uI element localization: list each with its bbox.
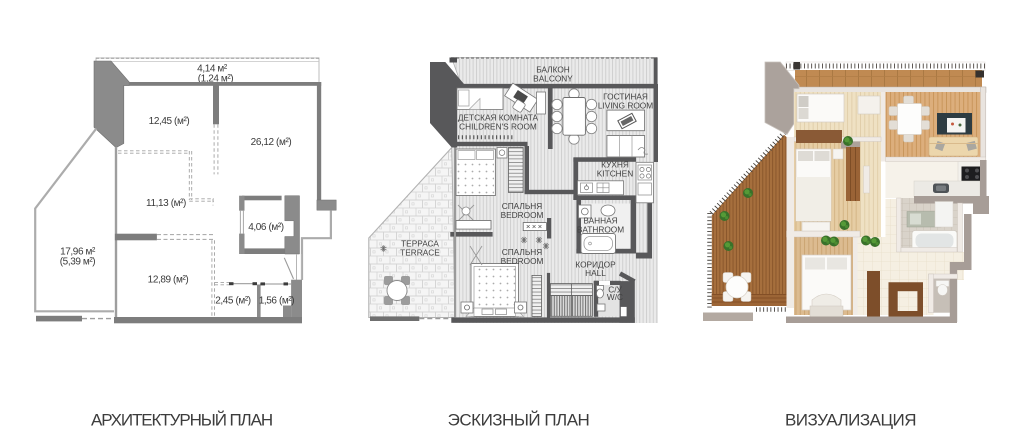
svg-text:KITCHEN: KITCHEN <box>597 169 633 179</box>
svg-text:BALCONY: BALCONY <box>533 74 573 84</box>
svg-text:ВИЗУАЛИЗАЦИЯ: ВИЗУАЛИЗАЦИЯ <box>785 411 916 430</box>
svg-text:12,45 (м²): 12,45 (м²) <box>149 116 190 127</box>
svg-text:CHILDREN'S ROOM: CHILDREN'S ROOM <box>459 122 537 132</box>
svg-text:2,45 (м²): 2,45 (м²) <box>215 296 251 307</box>
svg-text:12,89 (м²): 12,89 (м²) <box>148 275 189 286</box>
svg-text:TERRACE: TERRACE <box>400 248 440 258</box>
svg-text:26,12 (м²): 26,12 (м²) <box>251 137 292 148</box>
svg-text:1,56 (м²): 1,56 (м²) <box>259 296 295 307</box>
svg-text:4,06 (м²): 4,06 (м²) <box>248 222 284 233</box>
svg-text:BEDROOM: BEDROOM <box>501 210 544 220</box>
svg-text:W/C: W/C <box>607 292 623 302</box>
svg-text:HALL: HALL <box>585 268 606 278</box>
svg-text:BEDROOM: BEDROOM <box>501 256 544 266</box>
svg-text:LIVING ROOM: LIVING ROOM <box>598 101 653 111</box>
svg-text:×××: ××× <box>526 222 544 231</box>
svg-text:11,13 (м²): 11,13 (м²) <box>146 198 186 209</box>
svg-text:(5,39 м²): (5,39 м²) <box>60 257 96 268</box>
svg-text:АРХИТЕКТУРНЫЙ ПЛАН: АРХИТЕКТУРНЫЙ ПЛАН <box>91 411 272 430</box>
svg-text:ЭСКИЗНЫЙ ПЛАН: ЭСКИЗНЫЙ ПЛАН <box>448 411 590 430</box>
svg-text:BATHROOM: BATHROOM <box>577 225 624 235</box>
